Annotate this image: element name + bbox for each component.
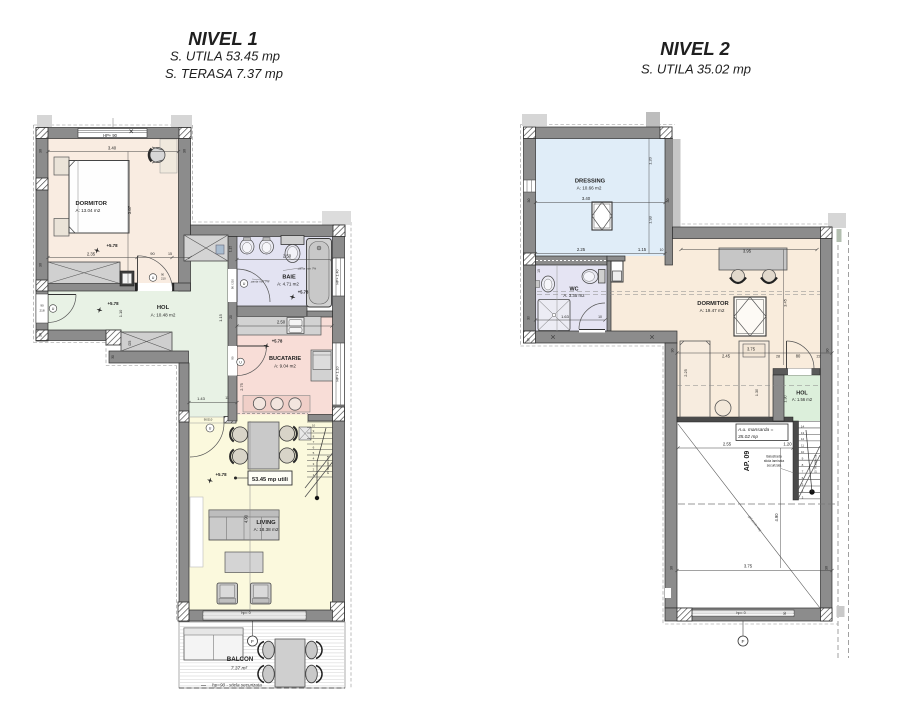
svg-text:BAIE: BAIE [282, 275, 296, 281]
svg-text:sticla laminata: sticla laminata [764, 459, 784, 463]
svg-text:A.u. mansarda =: A.u. mansarda = [737, 427, 774, 433]
svg-text:4.90: 4.90 [244, 514, 249, 523]
svg-text:30: 30 [527, 316, 531, 320]
svg-text:HP+ 90: HP+ 90 [103, 133, 117, 138]
svg-text:3.75: 3.75 [744, 564, 753, 569]
svg-text:panta min 7%: panta min 7% [250, 280, 270, 284]
svg-text:1.15: 1.15 [218, 314, 223, 322]
svg-text:2.45: 2.45 [722, 354, 731, 359]
svg-text:HP+ 1.10: HP+ 1.10 [336, 366, 340, 381]
svg-text:3.87: 3.87 [127, 205, 132, 214]
svg-text:+5.78: +5.78 [298, 290, 309, 295]
svg-text:HP+ 1.40: HP+ 1.40 [336, 269, 340, 284]
svg-text:WC: WC [570, 287, 579, 293]
svg-text:U: U [209, 427, 212, 431]
svg-text:hp=90 - sticla securizata: hp=90 - sticla securizata [212, 683, 262, 688]
svg-text:hp= 0: hp= 0 [241, 611, 250, 615]
svg-text:218: 218 [39, 309, 44, 313]
svg-text:10: 10 [312, 424, 316, 428]
svg-text:U: U [239, 361, 242, 365]
svg-text:DRESSING: DRESSING [575, 179, 606, 185]
svg-text:2.50: 2.50 [283, 254, 292, 259]
svg-text:3.40: 3.40 [582, 196, 591, 201]
svg-text:210: 210 [161, 277, 166, 281]
svg-text:NIVEL 1: NIVEL 1 [188, 28, 258, 49]
svg-text:DORMITOR: DORMITOR [76, 201, 108, 207]
svg-text:F: F [742, 639, 745, 645]
svg-text:A: 19.47 m2: A: 19.47 m2 [700, 308, 725, 313]
svg-text:1.93: 1.93 [648, 216, 653, 224]
svg-text:A: 10.66 m2: A: 10.66 m2 [577, 186, 602, 191]
svg-text:U: U [52, 307, 55, 311]
svg-text:30: 30 [826, 349, 830, 353]
svg-text:12: 12 [801, 437, 805, 441]
svg-text:13: 13 [801, 431, 805, 435]
svg-text:S. UTILA 35.02 mp: S. UTILA 35.02 mp [641, 62, 751, 77]
svg-text:A: 10.48 m2: A: 10.48 m2 [151, 313, 176, 318]
svg-text:1.20: 1.20 [648, 156, 653, 164]
svg-text:3.75: 3.75 [747, 347, 756, 352]
svg-text:U: U [152, 276, 155, 280]
svg-text:hp= 0: hp= 0 [736, 611, 745, 615]
svg-text:53.45 mp utili: 53.45 mp utili [252, 477, 288, 483]
svg-text:2.25: 2.25 [577, 247, 586, 252]
svg-text:30: 30 [666, 199, 670, 203]
svg-text:panta min 7%: panta min 7% [297, 267, 317, 271]
svg-text:AP. 09: AP. 09 [744, 451, 751, 472]
svg-text:LIVING: LIVING [256, 520, 276, 526]
svg-text:A: 1.56 m2: A: 1.56 m2 [792, 397, 813, 402]
svg-text:10: 10 [801, 450, 805, 454]
svg-text:15 TR 30/9 x 18: 15 TR 30/9 x 18 [326, 455, 330, 474]
svg-text:90 / 210: 90 / 210 [231, 279, 235, 290]
svg-text:30: 30 [39, 333, 43, 337]
svg-text:BUCATARIE: BUCATARIE [269, 356, 301, 362]
svg-text:HOL: HOL [796, 391, 808, 397]
svg-text:1.20: 1.20 [783, 442, 792, 447]
svg-text:90/210: 90/210 [204, 418, 213, 422]
svg-text:2.75: 2.75 [239, 383, 244, 391]
svg-text:10: 10 [598, 315, 602, 319]
svg-text:15 TR 30/9 x 18: 15 TR 30/9 x 18 [814, 454, 818, 473]
svg-text:35.02 mp: 35.02 mp [738, 434, 758, 440]
svg-text:NIVEL 2: NIVEL 2 [660, 38, 730, 59]
svg-text:90: 90 [40, 304, 44, 308]
svg-text:1.15: 1.15 [229, 246, 233, 252]
svg-text:A: 3.35 m2: A: 3.35 m2 [563, 293, 585, 298]
svg-text:2.35: 2.35 [87, 252, 96, 257]
svg-text:A: 18.38 m2: A: 18.38 m2 [254, 527, 279, 532]
svg-text:90: 90 [150, 251, 155, 256]
svg-text:+5.78: +5.78 [215, 472, 227, 477]
svg-text:+5.78: +5.78 [272, 339, 283, 344]
svg-text:80: 80 [796, 354, 801, 359]
svg-text:D5: D5 [128, 341, 132, 346]
svg-text:30: 30 [527, 338, 531, 342]
svg-text:BALCON: BALCON [227, 656, 254, 663]
svg-text:securizata: securizata [767, 464, 782, 468]
svg-text:30: 30 [825, 566, 829, 570]
svg-text:20: 20 [229, 315, 233, 319]
svg-text:1.10: 1.10 [118, 309, 123, 317]
svg-text:1.30: 1.30 [784, 395, 788, 402]
svg-text:30: 30 [670, 566, 674, 570]
svg-text:DORMITOR: DORMITOR [697, 301, 729, 307]
svg-text:30: 30 [783, 612, 787, 616]
svg-text:10: 10 [537, 269, 541, 273]
svg-text:2.25: 2.25 [683, 369, 688, 377]
svg-text:7.37 m²: 7.37 m² [231, 666, 248, 672]
svg-text:30: 30 [39, 263, 43, 267]
svg-text:14: 14 [801, 424, 805, 428]
svg-text:1.30: 1.30 [755, 389, 759, 396]
svg-text:F: F [251, 639, 254, 645]
svg-text:3.45: 3.45 [783, 299, 788, 307]
svg-text:A: 9.04 m2: A: 9.04 m2 [274, 364, 296, 369]
svg-text:HOL: HOL [157, 305, 170, 311]
svg-text:11: 11 [801, 444, 804, 448]
svg-text:3.95: 3.95 [743, 249, 752, 254]
svg-text:1.15: 1.15 [638, 247, 647, 252]
svg-text:3.40: 3.40 [108, 146, 117, 151]
svg-text:30: 30 [183, 149, 187, 153]
svg-text:+5.78: +5.78 [107, 301, 119, 306]
svg-text:A: 4.71 m2: A: 4.71 m2 [277, 282, 299, 287]
svg-text:+5.78: +5.78 [106, 243, 118, 248]
svg-text:Balustrada: Balustrada [766, 455, 781, 459]
svg-text:30: 30 [39, 149, 43, 153]
svg-text:2.50: 2.50 [277, 320, 286, 325]
svg-text:11: 11 [225, 396, 229, 400]
svg-text:28: 28 [776, 355, 780, 359]
svg-text:A: 13.04 m2: A: 13.04 m2 [76, 208, 101, 213]
svg-text:S. UTILA 53.45 mp: S. UTILA 53.45 mp [170, 49, 280, 64]
svg-text:30: 30 [671, 349, 675, 353]
svg-text:S. TERASA 7.37 mp: S. TERASA 7.37 mp [165, 66, 283, 81]
svg-text:4.90: 4.90 [774, 513, 779, 522]
svg-text:2.55: 2.55 [723, 442, 732, 447]
svg-text:1.63: 1.63 [561, 314, 570, 319]
svg-text:10: 10 [660, 248, 664, 252]
svg-text:30: 30 [111, 355, 115, 359]
svg-text:1.43: 1.43 [197, 396, 206, 401]
svg-text:30: 30 [527, 199, 531, 203]
svg-text:15: 15 [168, 252, 172, 256]
svg-text:90: 90 [231, 356, 235, 360]
svg-text:22: 22 [817, 355, 821, 359]
svg-text:U: U [243, 282, 246, 286]
